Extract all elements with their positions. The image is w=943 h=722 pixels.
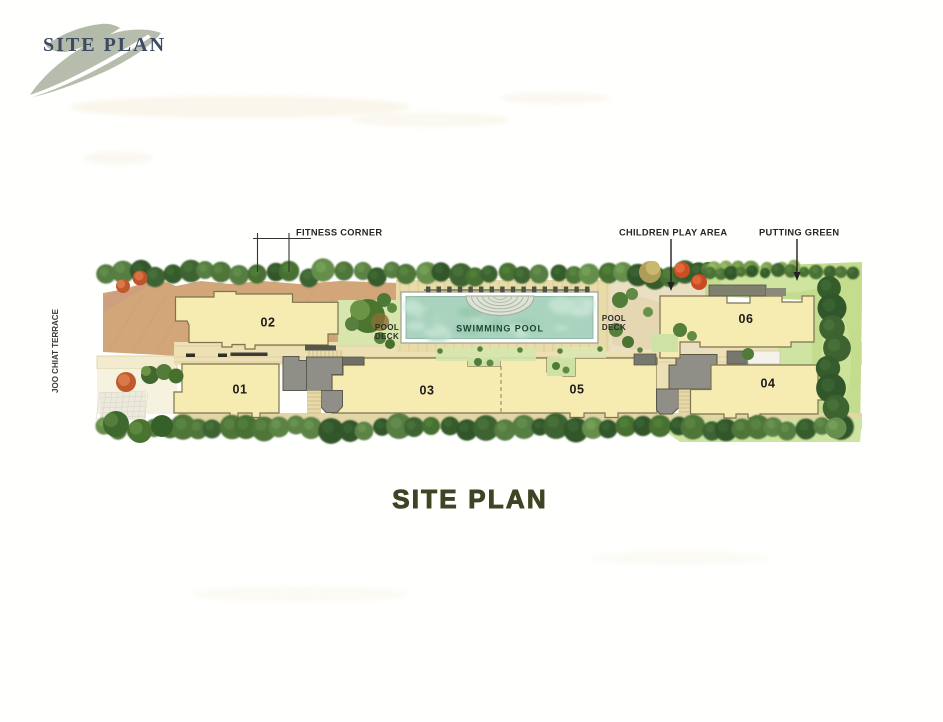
svg-text:SITE PLAN: SITE PLAN xyxy=(392,484,548,514)
svg-text:04: 04 xyxy=(761,377,776,391)
svg-text:SWIMMING POOL: SWIMMING POOL xyxy=(456,324,544,334)
svg-text:POOL: POOL xyxy=(602,314,626,323)
svg-text:01: 01 xyxy=(233,383,248,397)
svg-text:POOL: POOL xyxy=(375,323,399,332)
svg-text:SITE PLAN: SITE PLAN xyxy=(43,34,166,56)
svg-text:02: 02 xyxy=(261,316,276,330)
svg-text:JOO CHIAT TERRACE: JOO CHIAT TERRACE xyxy=(51,308,60,393)
svg-text:05: 05 xyxy=(570,383,585,397)
svg-text:03: 03 xyxy=(420,384,435,398)
svg-text:DECK: DECK xyxy=(375,332,399,341)
svg-text:PUTTING GREEN: PUTTING GREEN xyxy=(759,228,839,238)
svg-text:DECK: DECK xyxy=(602,323,626,332)
svg-text:06: 06 xyxy=(739,312,754,326)
svg-text:FITNESS CORNER: FITNESS CORNER xyxy=(296,228,382,238)
svg-text:CHILDREN PLAY AREA: CHILDREN PLAY AREA xyxy=(619,228,727,238)
